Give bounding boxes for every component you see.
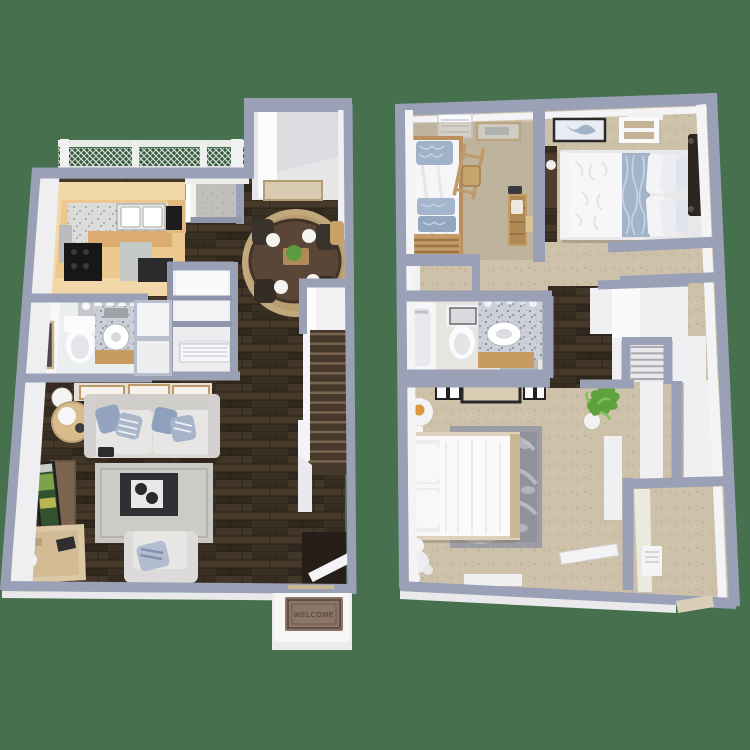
- svg-text:WELCOME: WELCOME: [294, 612, 334, 619]
